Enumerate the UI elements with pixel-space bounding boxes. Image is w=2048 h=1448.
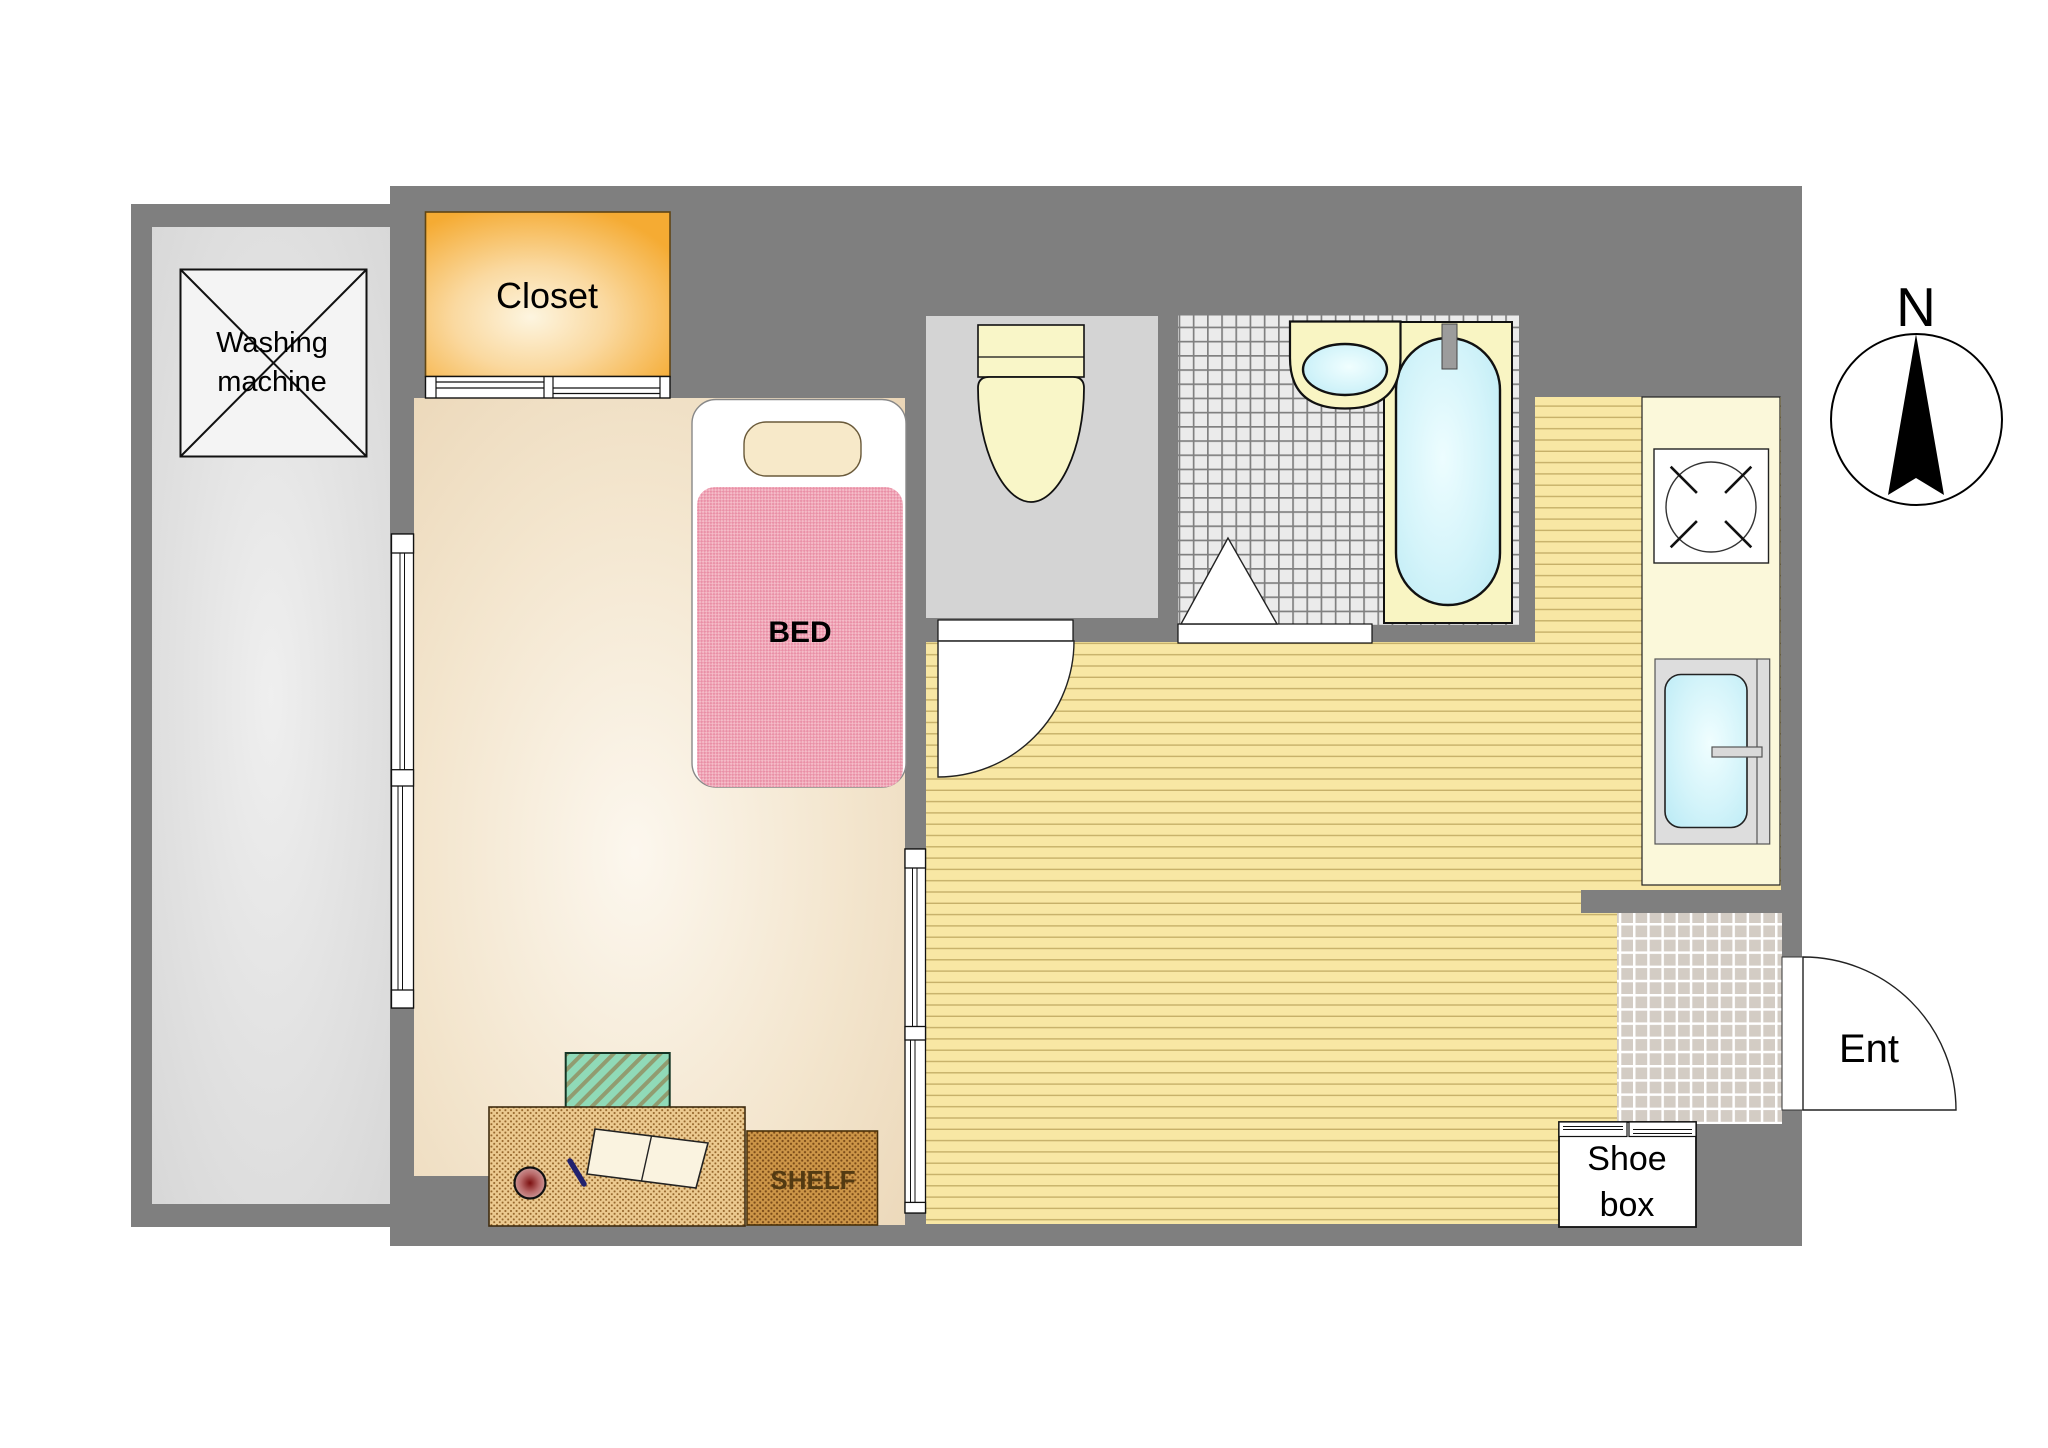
svg-text:SHELF: SHELF bbox=[770, 1165, 855, 1195]
svg-text:box: box bbox=[1600, 1186, 1655, 1224]
svg-text:machine: machine bbox=[217, 366, 327, 398]
svg-text:N: N bbox=[1896, 276, 1936, 338]
svg-text:Ent: Ent bbox=[1839, 1027, 1899, 1071]
svg-text:Closet: Closet bbox=[496, 275, 598, 316]
svg-text:BED: BED bbox=[768, 616, 831, 649]
svg-text:Washing: Washing bbox=[216, 327, 328, 359]
svg-text:Shoe: Shoe bbox=[1587, 1140, 1666, 1178]
